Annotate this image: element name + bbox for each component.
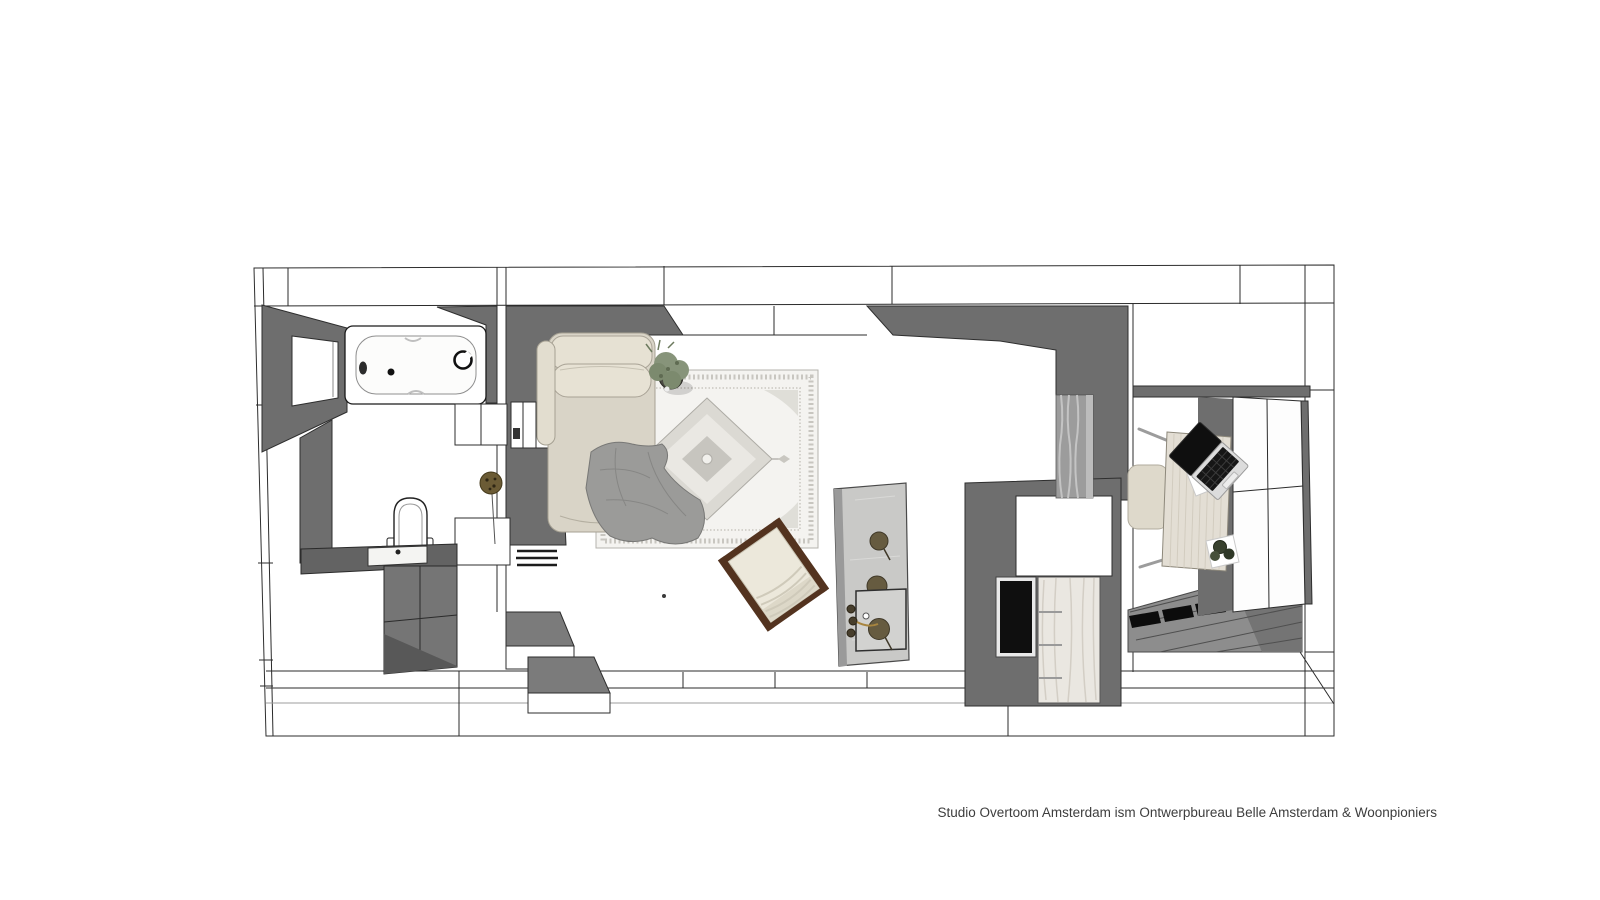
flower-dot [494,478,497,481]
rug-medallion-center [702,454,712,464]
plant-leaf-dot [675,361,679,365]
niche-detail [513,428,520,439]
pot-highlight [665,387,670,392]
desk-plant [1206,535,1239,568]
sink-faucet [396,550,401,555]
island-knob [849,617,857,625]
bathroom-west-wall-lower [300,420,332,563]
credit-caption: Studio Overtoom Amsterdam ism Ontwerpbur… [938,805,1438,820]
bathtub-faucet [359,362,367,375]
step-lower-front [528,693,610,713]
island-pom-plant [869,619,890,640]
office-north-wall [1133,386,1310,397]
flower-dot [485,478,488,481]
desk-plant-pom [1224,549,1235,560]
island-drain [863,613,869,619]
floor-speck [662,594,666,598]
island-knob [847,629,855,637]
desk-chair [1128,465,1168,529]
plant-leaf-dot [659,374,663,378]
desk-plant-pom [1210,551,1220,561]
oven-glass [1000,581,1032,653]
tall-cabinet [965,478,1121,706]
curtain-edge [1086,395,1093,498]
island-pom-plant [870,532,888,550]
plant-foliage [663,371,681,389]
vanity-sink [368,546,427,566]
flower-dot [489,488,492,491]
dried-flower [480,472,502,494]
floorplan-drawing: Studio Overtoom Amsterdam ism Ontwerpbur… [0,0,1600,900]
bathroom-window [292,336,338,406]
kitchen-island [834,483,909,666]
plant-leaf-dot [666,367,670,371]
flower-dot [492,484,495,487]
floorplan-canvas: Studio Overtoom Amsterdam ism Ontwerpbur… [0,0,1600,900]
bathtub-drain [388,369,395,376]
bath-cabinet-lower [455,518,510,565]
cabinet-white-front [1016,496,1112,576]
daybed-armrest [537,341,555,445]
island-knob [847,605,855,613]
